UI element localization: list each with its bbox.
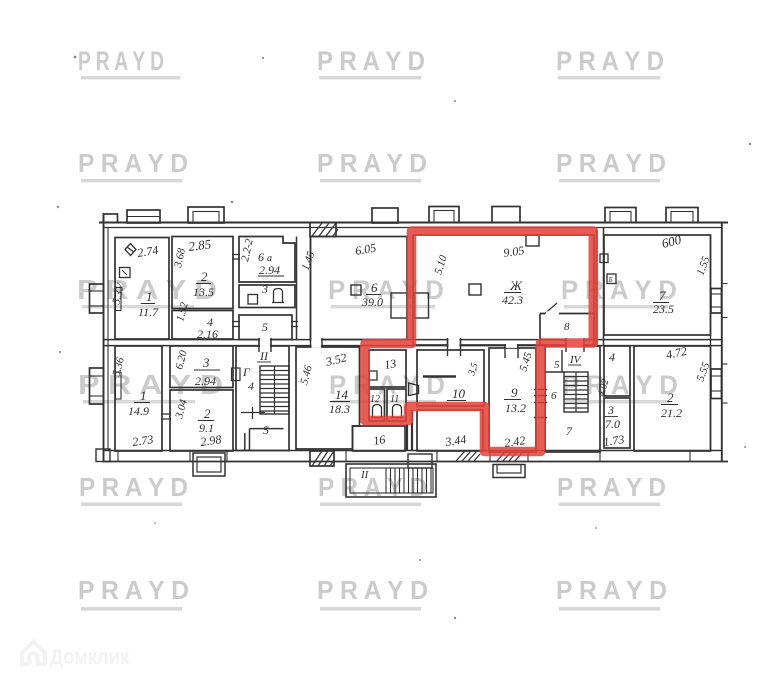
svg-text:39.0: 39.0 — [361, 295, 383, 309]
svg-text:5: 5 — [263, 423, 269, 437]
svg-text:Домклик: Домклик — [50, 646, 129, 669]
svg-text:23.5: 23.5 — [653, 302, 674, 316]
svg-text:1.73: 1.73 — [602, 432, 625, 449]
svg-text:42.3: 42.3 — [502, 293, 523, 307]
svg-text:2.94: 2.94 — [195, 374, 216, 388]
svg-text:2: 2 — [204, 406, 211, 421]
svg-text:7: 7 — [566, 424, 573, 438]
svg-text:7.0: 7.0 — [605, 417, 620, 431]
svg-text:4: 4 — [248, 379, 254, 393]
svg-text:6 a: 6 a — [258, 250, 272, 264]
svg-text:9.05: 9.05 — [502, 243, 525, 260]
svg-text:18.3: 18.3 — [329, 402, 350, 416]
svg-text:4: 4 — [609, 350, 615, 364]
svg-text:5: 5 — [262, 320, 268, 334]
svg-text:Б: Б — [608, 276, 613, 284]
svg-text:P R A Y D: P R A Y D — [317, 46, 425, 76]
svg-text:2.16: 2.16 — [197, 327, 218, 341]
svg-text:P R A Y D: P R A Y D — [78, 148, 188, 178]
svg-text:11.7: 11.7 — [138, 305, 159, 319]
svg-text:14: 14 — [335, 387, 349, 402]
svg-text:P R A Y D: P R A Y D — [78, 46, 164, 76]
svg-text:7: 7 — [659, 288, 666, 303]
svg-text:3: 3 — [202, 355, 210, 370]
svg-text:2: 2 — [201, 269, 208, 284]
svg-text:13.5: 13.5 — [193, 285, 214, 299]
svg-text:P R A Y D: P R A Y D — [556, 575, 667, 605]
svg-text:P R A Y D: P R A Y D — [557, 472, 666, 502]
svg-text:Г: Г — [242, 365, 251, 379]
svg-text:11: 11 — [390, 394, 399, 405]
svg-text:II: II — [360, 469, 370, 481]
svg-text:II: II — [259, 349, 269, 363]
svg-text:6: 6 — [371, 280, 378, 295]
svg-text:14.9: 14.9 — [128, 404, 149, 418]
svg-text:1: 1 — [146, 289, 153, 304]
svg-text:P R A Y D: P R A Y D — [317, 575, 428, 605]
svg-text:P R A Y D: P R A Y D — [78, 575, 189, 605]
svg-text:16: 16 — [372, 432, 386, 448]
svg-text:21.2: 21.2 — [661, 406, 682, 420]
svg-text:Ж: Ж — [509, 278, 523, 293]
svg-text:9: 9 — [511, 385, 518, 400]
svg-text:2.98: 2.98 — [199, 432, 222, 449]
svg-text:13: 13 — [383, 356, 397, 372]
svg-text:10: 10 — [452, 386, 466, 401]
svg-text:2.94: 2.94 — [259, 263, 280, 277]
svg-text:13.2: 13.2 — [505, 401, 526, 415]
svg-text:2.85: 2.85 — [188, 236, 213, 254]
svg-text:12: 12 — [370, 394, 380, 405]
svg-text:3: 3 — [261, 282, 268, 296]
svg-text:8: 8 — [564, 321, 570, 333]
svg-text:1: 1 — [140, 388, 147, 403]
svg-text:P R A Y D: P R A Y D — [328, 275, 444, 305]
svg-text:2.73: 2.73 — [131, 432, 154, 449]
svg-text:P R A Y D: P R A Y D — [556, 148, 666, 178]
svg-text:5: 5 — [554, 359, 560, 371]
svg-text:6: 6 — [551, 390, 557, 402]
svg-text:3: 3 — [607, 403, 614, 417]
svg-text:P R A Y D: P R A Y D — [556, 46, 664, 76]
svg-text:2: 2 — [667, 390, 674, 405]
svg-text:P R A Y D: P R A Y D — [317, 148, 427, 178]
svg-text:P R A Y D: P R A Y D — [79, 472, 188, 502]
svg-text:IV: IV — [569, 354, 582, 366]
